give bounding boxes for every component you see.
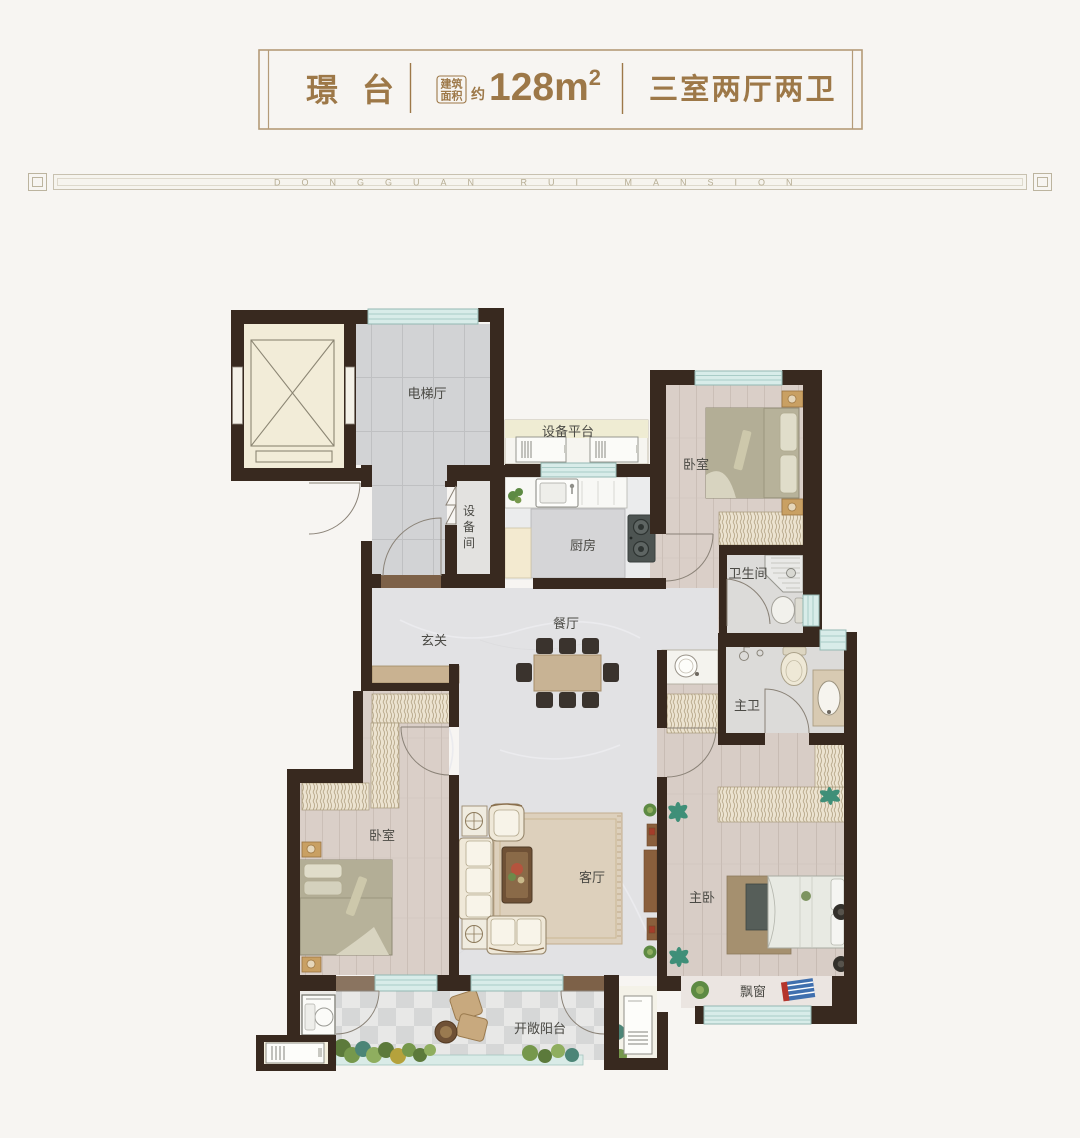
svg-text:厨房: 厨房 bbox=[570, 538, 596, 553]
svg-text:DONGGUAN RUI MANSION: DONGGUAN RUI MANSION bbox=[274, 178, 814, 188]
svg-text:主卧: 主卧 bbox=[689, 890, 715, 905]
svg-text:飘窗: 飘窗 bbox=[740, 984, 766, 999]
svg-text:备: 备 bbox=[463, 520, 475, 534]
svg-text:三室两厅两卫: 三室两厅两卫 bbox=[649, 72, 837, 106]
svg-text:玄关: 玄关 bbox=[421, 633, 447, 648]
svg-text:设备平台: 设备平台 bbox=[542, 424, 594, 439]
svg-text:卧室: 卧室 bbox=[683, 457, 709, 472]
svg-text:卧室: 卧室 bbox=[369, 828, 395, 843]
svg-text:设: 设 bbox=[463, 504, 475, 518]
svg-text:建筑: 建筑 bbox=[441, 77, 463, 91]
svg-text:璟台: 璟台 bbox=[306, 72, 418, 108]
svg-text:约: 约 bbox=[471, 86, 485, 102]
svg-text:128m2: 128m2 bbox=[489, 65, 601, 109]
svg-text:卫生间: 卫生间 bbox=[728, 566, 767, 581]
svg-text:餐厅: 餐厅 bbox=[553, 616, 579, 631]
svg-text:电梯厅: 电梯厅 bbox=[407, 386, 446, 401]
svg-text:开敞阳台: 开敞阳台 bbox=[514, 1021, 566, 1036]
svg-text:客厅: 客厅 bbox=[579, 870, 605, 885]
svg-text:主卫: 主卫 bbox=[734, 698, 760, 713]
svg-text:面积: 面积 bbox=[441, 89, 463, 103]
svg-text:间: 间 bbox=[463, 536, 475, 550]
